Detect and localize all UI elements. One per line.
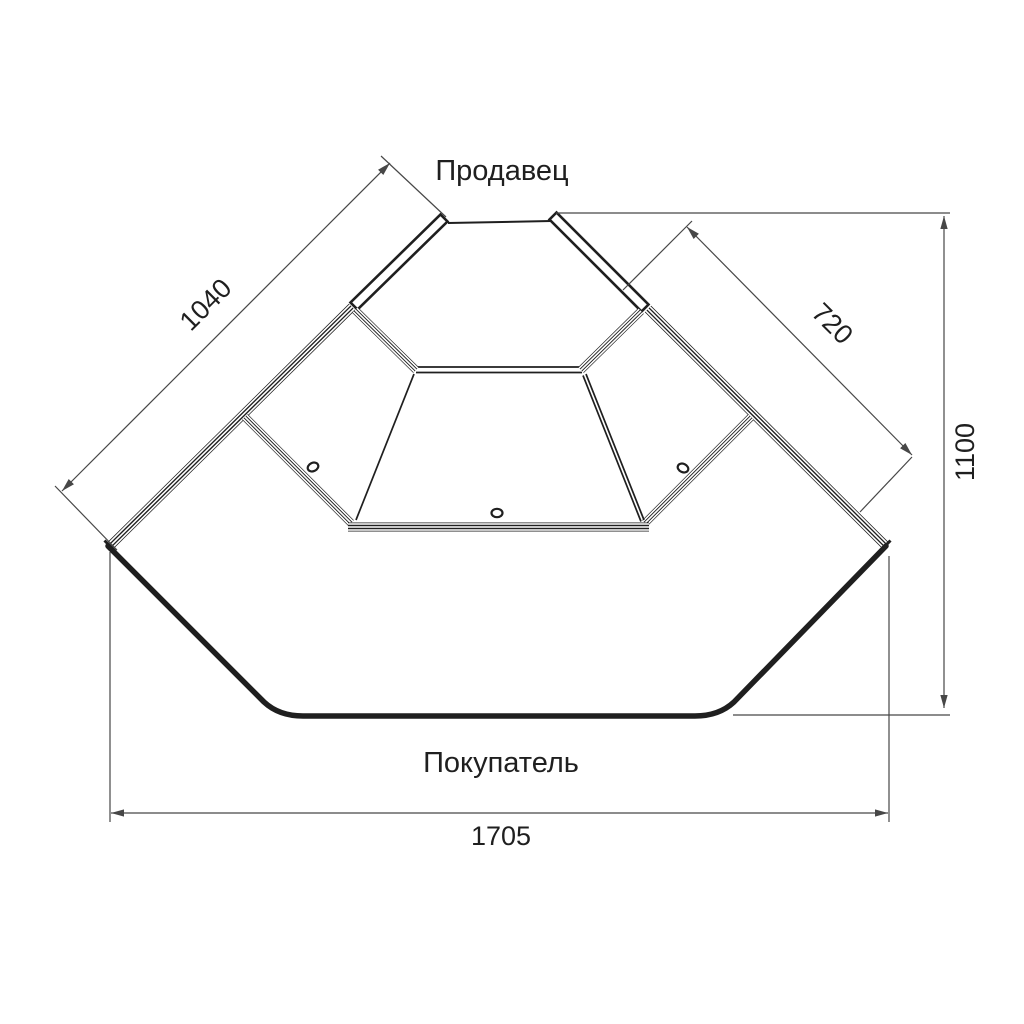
- corner-display-case-top-view-drawing: 1040 720 1100 1705 Продавец Покупатель: [0, 0, 1024, 1024]
- drawing-background: [0, 0, 1024, 1024]
- technical-drawing-page: 1040 720 1100 1705 Продавец Покупатель: [0, 0, 1024, 1024]
- buyer-side-label: Покупатель: [423, 747, 579, 779]
- dim-depth-value: 1100: [950, 423, 980, 481]
- seller-side-label: Продавец: [435, 155, 568, 187]
- dim-width-value: 1705: [471, 821, 531, 851]
- front-deck-edge-band: [348, 524, 649, 530]
